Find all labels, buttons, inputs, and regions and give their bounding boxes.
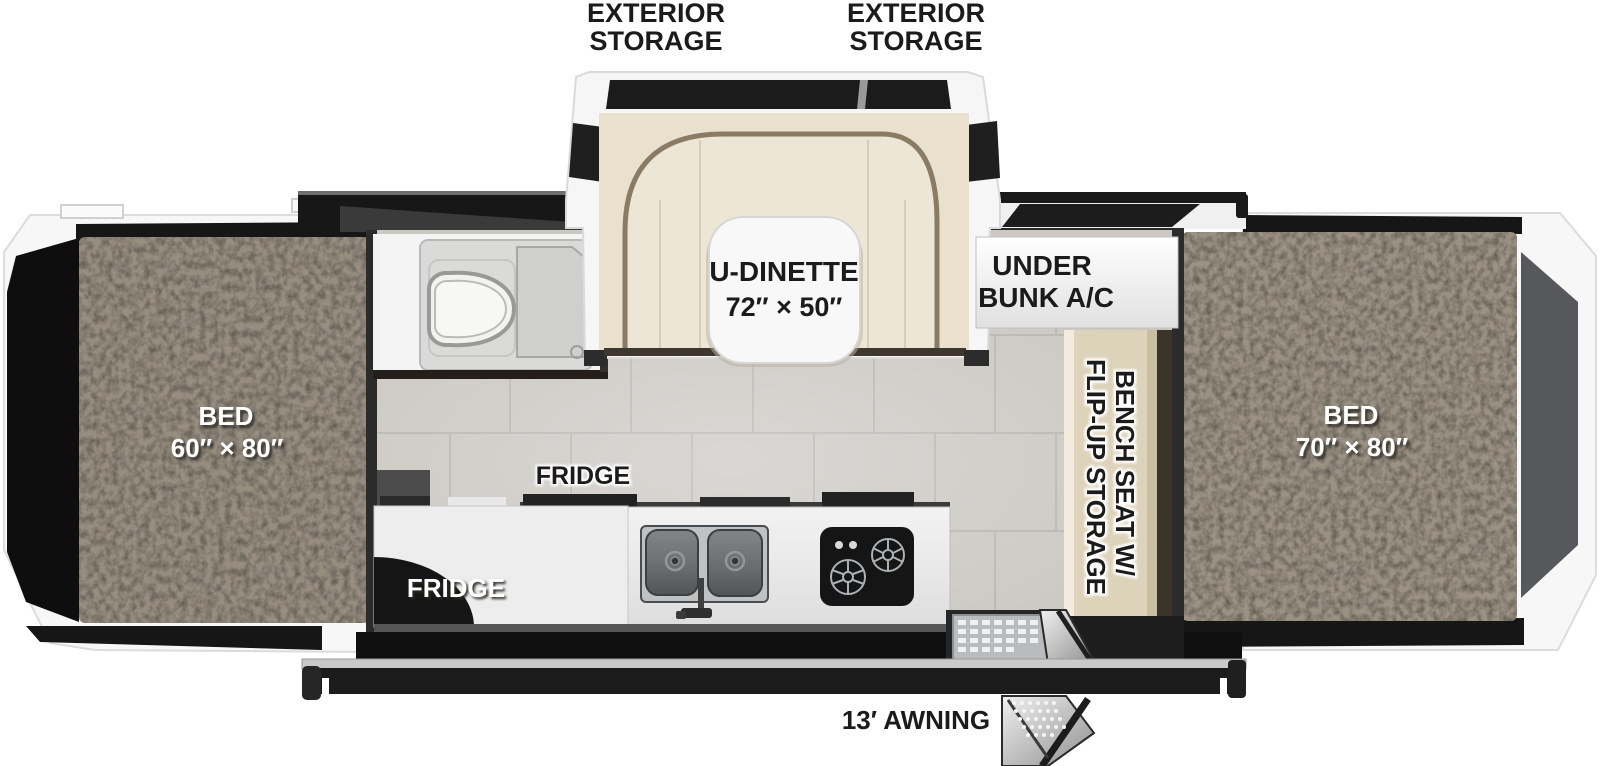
svg-text:EXTERIOR: EXTERIOR	[847, 0, 985, 28]
svg-text:60″ × 80″: 60″ × 80″	[171, 433, 283, 463]
svg-text:FLIP-UP STORAGE: FLIP-UP STORAGE	[1081, 359, 1111, 595]
svg-text:U-DINETTE: U-DINETTE	[709, 256, 858, 287]
svg-text:BED: BED	[199, 401, 254, 431]
svg-text:70″ × 80″: 70″ × 80″	[1296, 432, 1408, 462]
svg-text:UNDER: UNDER	[992, 250, 1092, 281]
svg-text:FRIDGE: FRIDGE	[536, 462, 630, 490]
svg-text:EXTERIOR: EXTERIOR	[587, 0, 725, 28]
svg-text:STORAGE: STORAGE	[849, 26, 982, 56]
svg-text:BUNK A/C: BUNK A/C	[978, 282, 1114, 313]
svg-text:STORAGE: STORAGE	[589, 26, 722, 56]
svg-text:BED: BED	[1324, 400, 1379, 430]
svg-text:FRIDGE: FRIDGE	[407, 573, 505, 603]
svg-text:13′ AWNING: 13′ AWNING	[842, 705, 990, 735]
svg-text:BENCH SEAT W/: BENCH SEAT W/	[1110, 370, 1140, 576]
svg-text:72″ × 50″: 72″ × 50″	[726, 292, 843, 322]
